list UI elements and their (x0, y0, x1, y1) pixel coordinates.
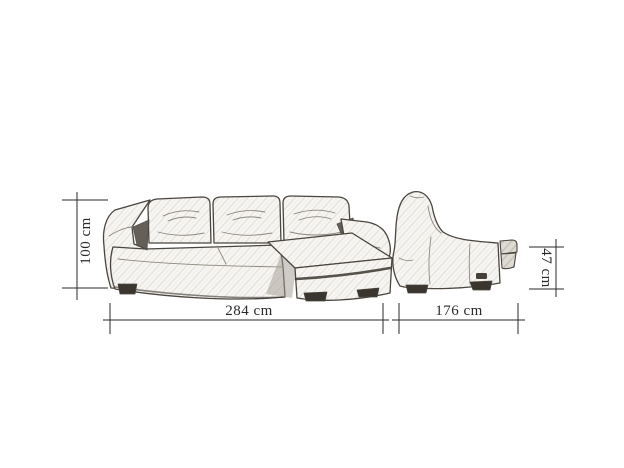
front-back-cushion-2 (213, 196, 281, 243)
side-brand-tag (476, 273, 487, 279)
sofa-dimension-diagram: 100 cm 284 cm 176 cm 47 cm (0, 0, 624, 468)
dimension-height-label: 100 cm (78, 217, 94, 265)
front-back-cushion-1 (148, 197, 211, 243)
dimension-height: 100 cm (62, 192, 108, 300)
chaise-foot-right (357, 288, 379, 297)
side-step-block-lower (501, 253, 516, 269)
dimension-width-label: 284 cm (225, 303, 273, 319)
side-view-drawing (393, 192, 517, 293)
front-foot-left (118, 284, 137, 294)
side-foot-right (470, 281, 492, 290)
front-view-drawing (103, 196, 392, 301)
side-foot-left (406, 285, 428, 293)
dimension-seat-height-label: 47 cm (538, 248, 554, 288)
side-step-block-upper (500, 240, 517, 254)
dimension-depth: 176 cm (392, 303, 525, 334)
dimension-seat-height: 47 cm (529, 239, 564, 297)
dimension-width: 284 cm (103, 303, 389, 334)
diagram-canvas: 100 cm 284 cm 176 cm 47 cm (0, 0, 624, 468)
chaise-foot-left (304, 292, 327, 301)
front-seat-base (111, 245, 285, 299)
dimension-depth-label: 176 cm (435, 303, 483, 319)
